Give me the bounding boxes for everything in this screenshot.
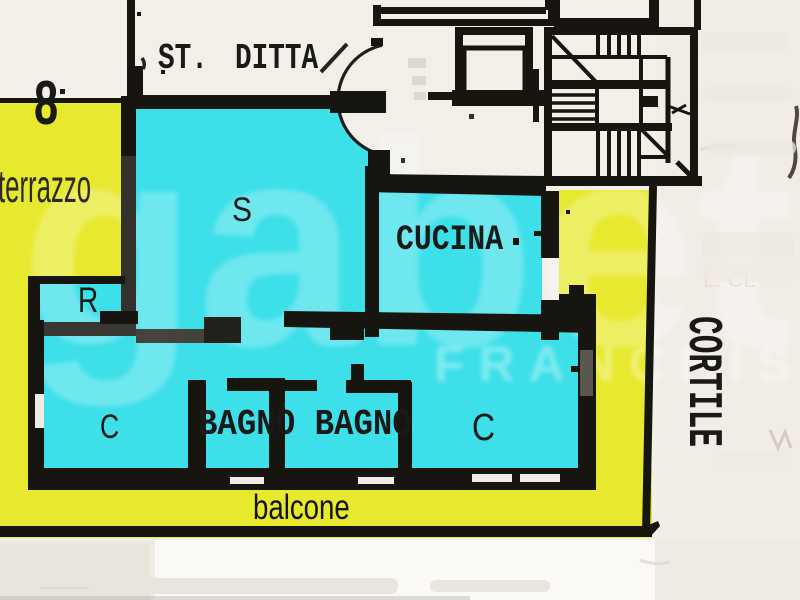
svg-text:ST.: ST. xyxy=(158,38,208,79)
svg-text:BAGNO BAGNO: BAGNO BAGNO xyxy=(198,405,412,446)
svg-text:C: C xyxy=(100,408,119,446)
svg-text:balcone: balcone xyxy=(253,487,350,527)
svg-text:terrazzo: terrazzo xyxy=(0,160,91,212)
svg-text:FRANCHISIN: FRANCHISIN xyxy=(434,336,800,392)
svg-text:CORTILE: CORTILE xyxy=(675,316,730,447)
svg-text:CUCINA: CUCINA xyxy=(396,220,504,260)
svg-text:C: C xyxy=(472,406,495,448)
svg-text:R: R xyxy=(78,280,98,320)
svg-text:DITTA: DITTA xyxy=(235,38,319,79)
svg-text:8: 8 xyxy=(34,70,58,138)
svg-text:S: S xyxy=(232,190,252,228)
